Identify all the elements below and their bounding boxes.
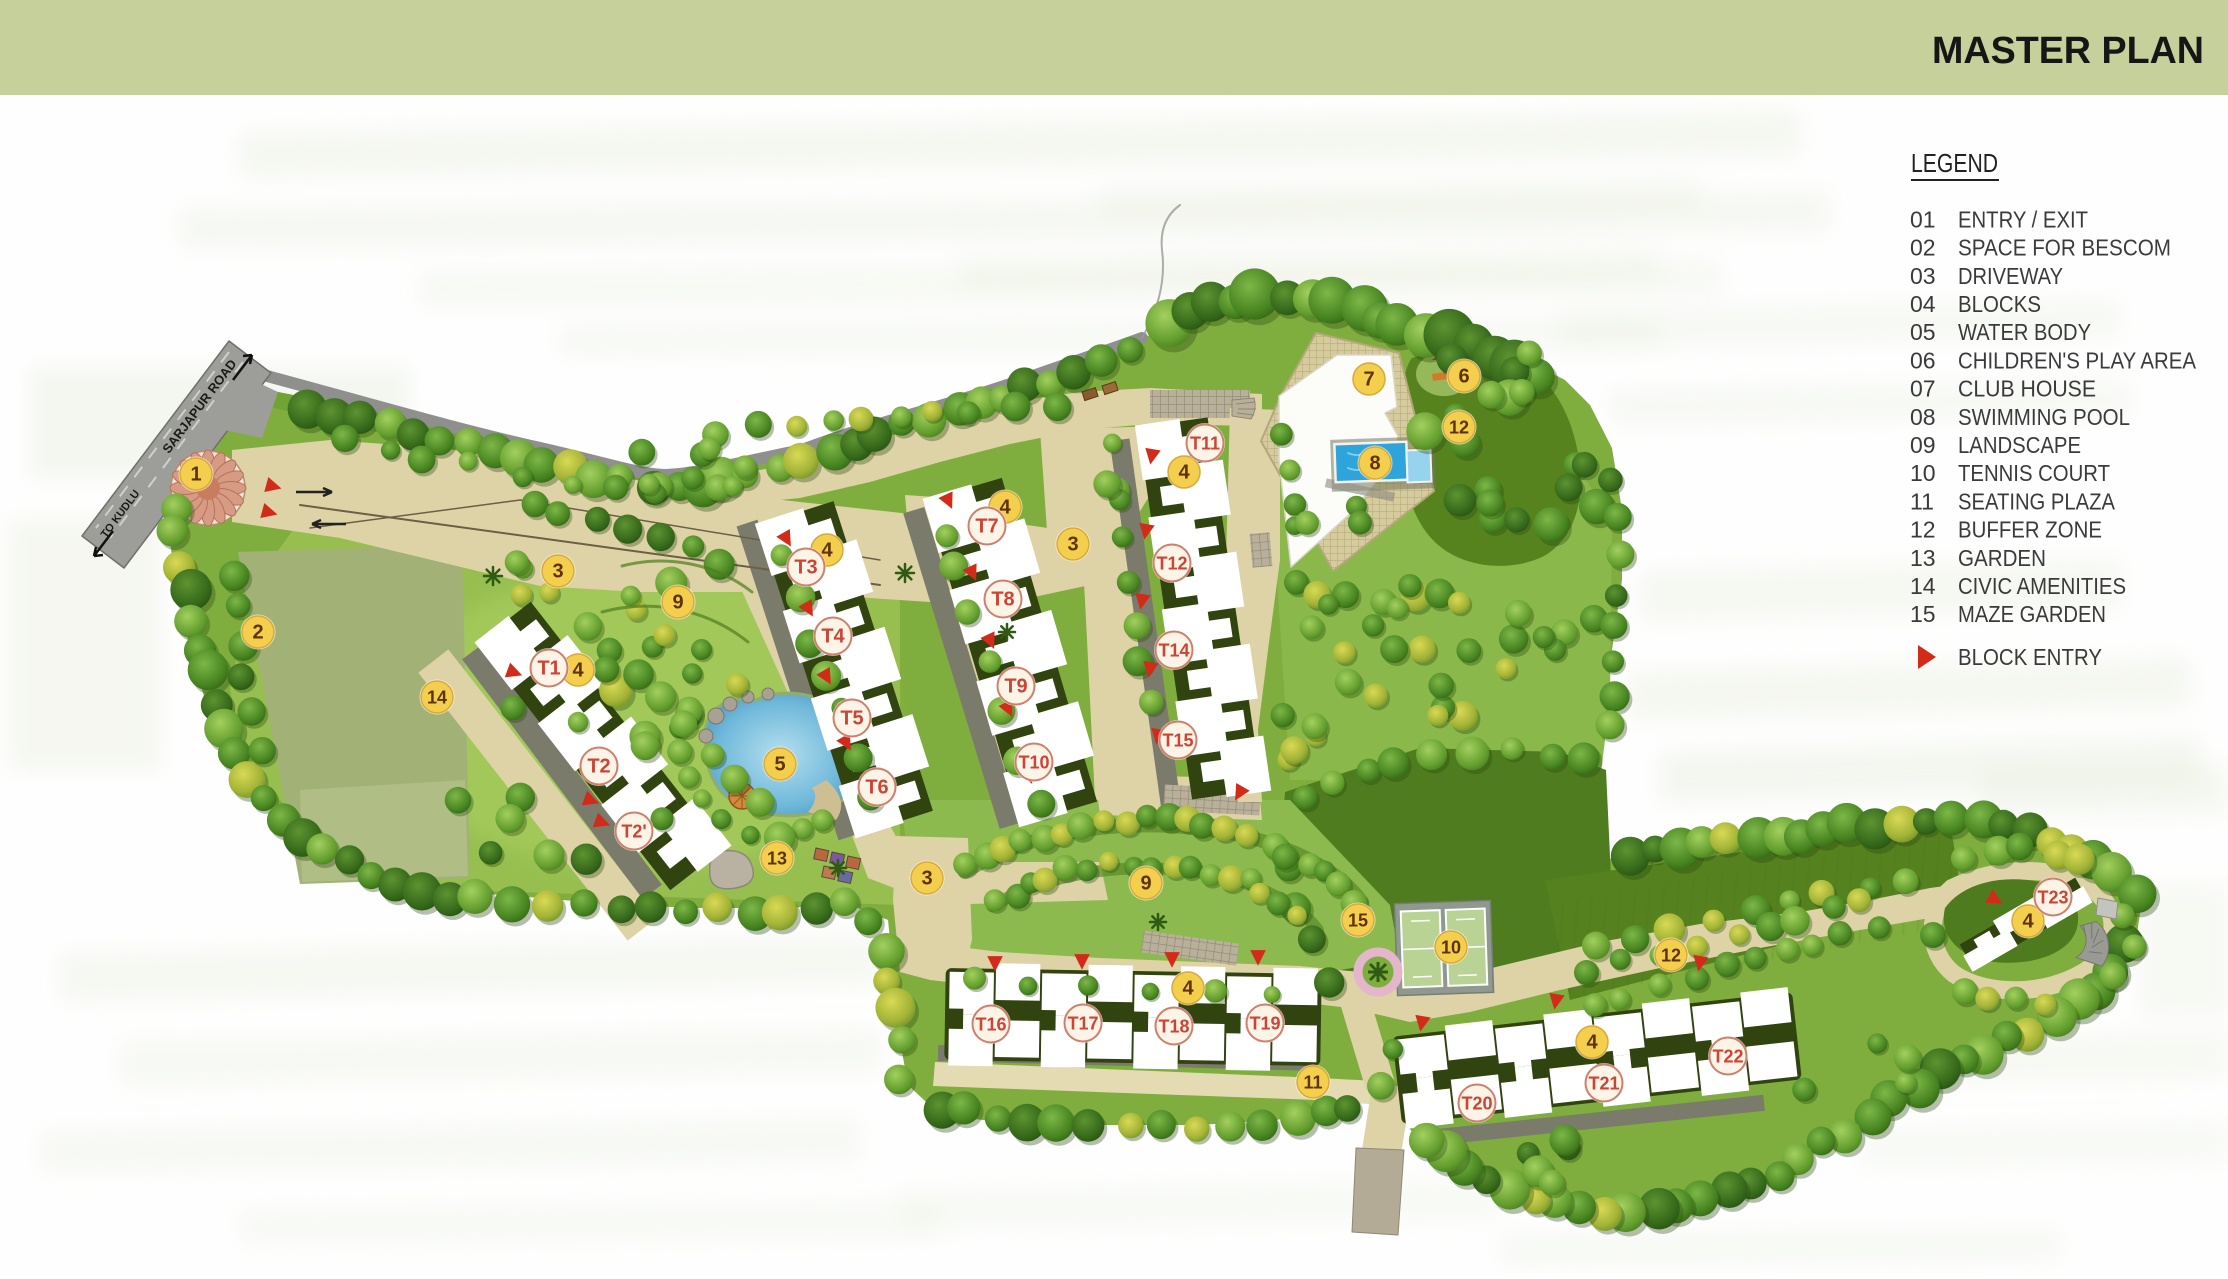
svg-text:4: 4 (1586, 1032, 1598, 1054)
svg-text:3: 3 (552, 561, 563, 583)
svg-text:MASTER PLAN: MASTER PLAN (1932, 30, 2204, 72)
svg-text:CHILDREN'S PLAY AREA: CHILDREN'S PLAY AREA (1958, 347, 2197, 373)
svg-text:T14: T14 (1158, 641, 1189, 661)
svg-text:12: 12 (1910, 517, 1936, 543)
svg-text:TENNIS COURT: TENNIS COURT (1958, 460, 2110, 486)
svg-text:T22: T22 (1712, 1047, 1743, 1067)
svg-text:11: 11 (1303, 1073, 1322, 1093)
svg-text:3: 3 (1067, 534, 1078, 556)
svg-text:13: 13 (767, 849, 787, 869)
svg-text:11: 11 (1910, 488, 1934, 514)
svg-text:BUFFER ZONE: BUFFER ZONE (1958, 517, 2102, 543)
svg-text:4: 4 (1182, 978, 1194, 1000)
svg-text:12: 12 (1661, 946, 1681, 966)
svg-text:1: 1 (190, 464, 201, 486)
svg-text:T7: T7 (975, 516, 998, 538)
svg-text:T10: T10 (1018, 753, 1049, 773)
svg-text:8: 8 (1369, 453, 1380, 475)
svg-text:10: 10 (1441, 938, 1461, 958)
svg-text:T8: T8 (991, 589, 1014, 611)
svg-text:WATER BODY: WATER BODY (1958, 319, 2091, 345)
svg-text:9: 9 (672, 592, 683, 614)
svg-text:02: 02 (1910, 235, 1936, 261)
svg-text:06: 06 (1910, 347, 1936, 373)
svg-text:GARDEN: GARDEN (1958, 545, 2046, 571)
svg-text:5: 5 (774, 754, 785, 776)
svg-text:05: 05 (1910, 319, 1936, 345)
svg-text:T2: T2 (587, 756, 610, 778)
svg-text:7: 7 (1363, 369, 1374, 391)
svg-text:4: 4 (572, 660, 584, 682)
svg-text:09: 09 (1910, 432, 1936, 458)
svg-text:3: 3 (921, 868, 932, 890)
svg-text:SPACE FOR BESCOM: SPACE FOR BESCOM (1958, 235, 2171, 261)
svg-text:T2': T2' (621, 822, 646, 842)
svg-text:01: 01 (1910, 206, 1936, 232)
svg-text:T19: T19 (1249, 1014, 1280, 1034)
svg-text:T21: T21 (1588, 1074, 1619, 1094)
svg-text:MAZE GARDEN: MAZE GARDEN (1958, 601, 2106, 627)
svg-text:T12: T12 (1156, 554, 1187, 574)
svg-text:13: 13 (1910, 545, 1936, 571)
svg-text:14: 14 (427, 688, 447, 708)
svg-text:LEGEND: LEGEND (1911, 148, 1998, 178)
svg-text:2: 2 (252, 622, 263, 644)
svg-text:SEATING PLAZA: SEATING PLAZA (1958, 488, 2116, 514)
svg-text:08: 08 (1910, 404, 1936, 430)
svg-text:4: 4 (2022, 911, 2034, 933)
svg-text:CLUB HOUSE: CLUB HOUSE (1958, 376, 2096, 402)
svg-text:9: 9 (1140, 873, 1151, 895)
svg-text:T17: T17 (1067, 1014, 1098, 1034)
svg-text:ENTRY / EXIT: ENTRY / EXIT (1958, 206, 2088, 232)
svg-text:BLOCK ENTRY: BLOCK ENTRY (1958, 644, 2102, 670)
svg-text:T1: T1 (537, 658, 560, 680)
svg-text:T6: T6 (865, 777, 888, 799)
svg-text:BLOCKS: BLOCKS (1958, 291, 2041, 317)
svg-text:4: 4 (1178, 462, 1190, 484)
svg-text:T9: T9 (1004, 676, 1027, 698)
svg-text:10: 10 (1910, 460, 1936, 486)
svg-text:12: 12 (1449, 418, 1469, 438)
svg-text:15: 15 (1348, 911, 1368, 931)
svg-text:T23: T23 (2037, 888, 2068, 908)
svg-text:DRIVEWAY: DRIVEWAY (1958, 263, 2063, 289)
svg-text:14: 14 (1910, 573, 1936, 599)
svg-text:04: 04 (1910, 291, 1936, 317)
svg-text:T3: T3 (794, 557, 817, 579)
svg-text:T11: T11 (1190, 434, 1220, 454)
svg-text:T15: T15 (1162, 731, 1193, 751)
svg-text:6: 6 (1458, 366, 1469, 388)
svg-text:15: 15 (1910, 601, 1936, 627)
svg-text:T20: T20 (1461, 1094, 1492, 1114)
svg-text:T4: T4 (821, 626, 845, 648)
svg-text:T16: T16 (975, 1015, 1006, 1035)
svg-text:SWIMMING POOL: SWIMMING POOL (1958, 404, 2130, 430)
svg-text:03: 03 (1910, 263, 1936, 289)
svg-text:LANDSCAPE: LANDSCAPE (1958, 432, 2081, 458)
svg-text:CIVIC AMENITIES: CIVIC AMENITIES (1958, 573, 2126, 599)
svg-text:T5: T5 (840, 708, 863, 730)
svg-text:07: 07 (1910, 376, 1936, 402)
svg-text:T18: T18 (1158, 1017, 1189, 1037)
